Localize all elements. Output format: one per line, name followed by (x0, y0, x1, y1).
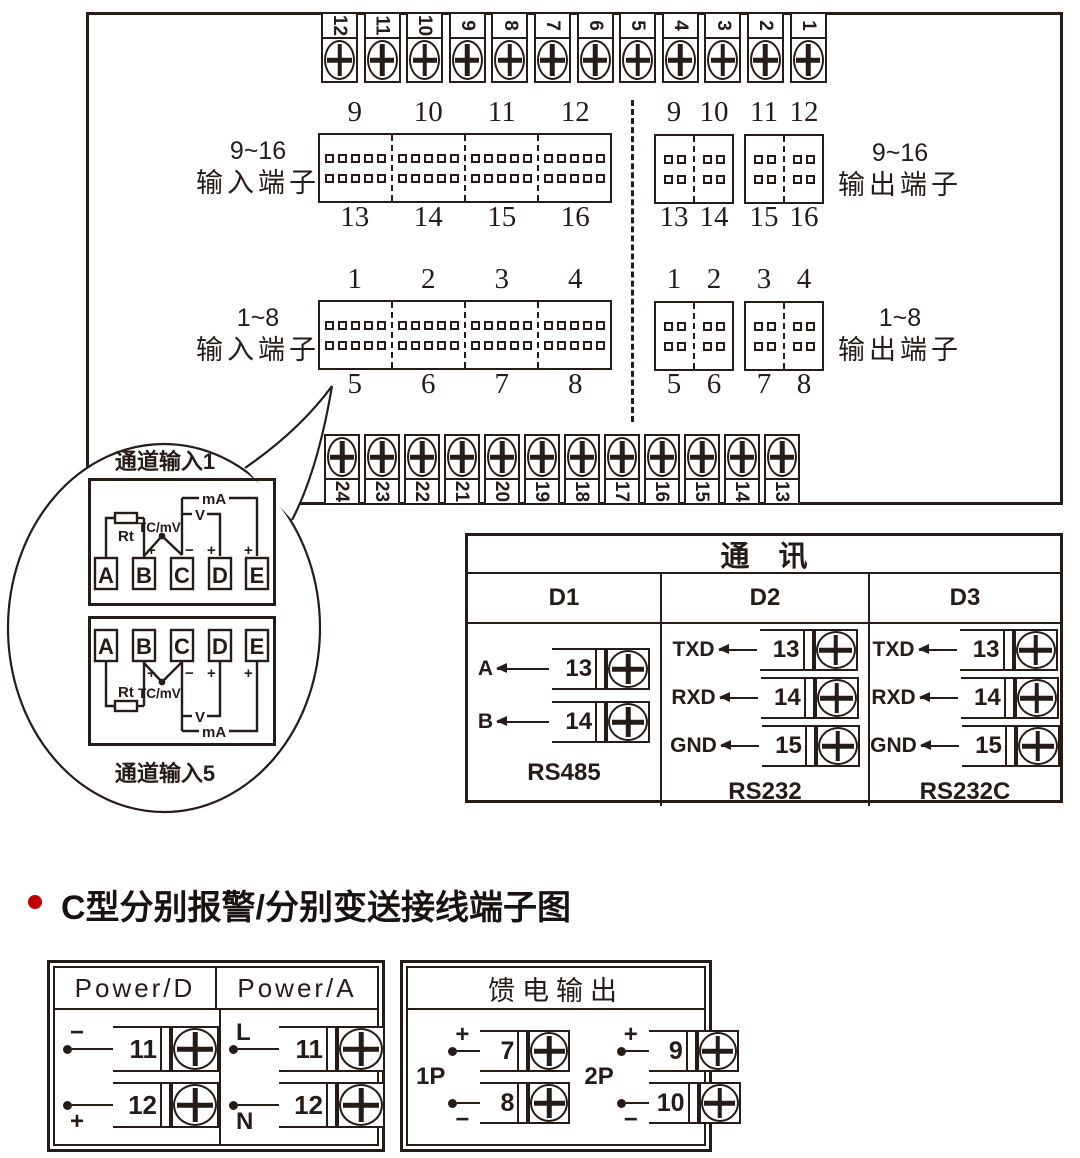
channel-input-5-label: 通道输入5 (60, 756, 270, 788)
terminal-number: 14 (971, 679, 1004, 717)
pin-square (677, 322, 686, 331)
pin-square (754, 342, 763, 351)
terminal-number: 18 (566, 478, 598, 503)
screw-terminal: 23 (364, 434, 400, 505)
terminal-number: 12 (123, 1084, 160, 1126)
pin-square (596, 341, 605, 350)
pin-square (677, 155, 686, 164)
signal-row: GND15 (670, 725, 860, 767)
power-column-title: Power/D (55, 968, 215, 1008)
arrow-icon (720, 697, 758, 699)
terminal-number: 23 (366, 478, 398, 503)
pin-column-number: 15 (744, 201, 784, 234)
terminal-number: 6 (579, 14, 612, 39)
signal-row: RXD14 (671, 677, 858, 719)
pin-square (570, 321, 579, 330)
terminal-number: 14 (726, 478, 758, 503)
tc-mv-label: TC/mV (138, 520, 181, 535)
power-terminal-box: Power/DPower/A −11+12L11N12 (47, 960, 385, 1152)
pin-square (767, 342, 776, 351)
signal-row: TXD13 (873, 629, 1058, 671)
pin-column-number: 4 (784, 263, 824, 296)
pin-column-number: 9 (654, 96, 694, 129)
pin-square (716, 342, 725, 351)
terminal-b: B (136, 563, 152, 588)
screw-terminal: 19 (524, 434, 560, 505)
pin-square (570, 174, 579, 183)
pin-square (544, 341, 553, 350)
terminal-number: 22 (406, 478, 438, 503)
polarity-sign: + (624, 1023, 638, 1047)
pin-column-number: 7 (744, 368, 784, 401)
terminal-a: A (98, 563, 114, 588)
pin-square (484, 154, 493, 163)
arrow-icon (497, 721, 549, 723)
wire: N (229, 1083, 279, 1127)
arrow-icon (921, 745, 959, 747)
label-text: 输出端子 (800, 169, 1000, 203)
pin-square (471, 174, 480, 183)
screw-icon (1015, 677, 1059, 719)
pin-square (424, 321, 433, 330)
feed-output-box: 馈电输出 1P+7−82P+9−10 (400, 960, 712, 1152)
terminal: 14 (761, 677, 859, 719)
screw-icon (1016, 725, 1060, 767)
terminal-number: 3 (706, 14, 739, 39)
power-terminal-row: N12 (229, 1082, 385, 1128)
ma-label: mA (202, 724, 226, 741)
pin-square (716, 155, 725, 164)
communication-table: 通 讯 D1A13B14RS485D2TXD13RXD14GND15RS232D… (465, 533, 1063, 803)
pin-square (377, 174, 386, 183)
screw-terminal: 11 (364, 12, 401, 83)
minus-sign: − (185, 665, 194, 682)
pin-column-number: 8 (784, 368, 824, 401)
signal-name: B (478, 710, 493, 734)
pin-square (484, 174, 493, 183)
screw-icon (793, 40, 824, 80)
pin-square (398, 174, 407, 183)
terminal-number: 8 (488, 1084, 517, 1122)
terminal: 8 (480, 1082, 570, 1124)
pin-square (398, 321, 407, 330)
pin-square (497, 321, 506, 330)
pin-cell (464, 135, 537, 201)
screw-icon (815, 677, 859, 719)
terminal-d: D (212, 634, 228, 659)
pin-column-number: 1 (318, 263, 392, 296)
pin-column-number: 3 (744, 263, 784, 296)
terminal-number: 15 (972, 727, 1005, 765)
wire: + (63, 1083, 113, 1127)
input-9-16-connector (318, 133, 612, 203)
rt-label: Rt (118, 528, 134, 545)
wiring-diagram-page: { "colors": { "ink": "#251c18", "bullet"… (0, 0, 1080, 1158)
terminal-number: 15 (686, 478, 718, 503)
screw-icon (367, 40, 398, 80)
arrow-icon (497, 668, 549, 670)
wire: + (448, 1029, 480, 1073)
pin-square (570, 341, 579, 350)
screw-icon (816, 725, 860, 767)
terminal: 13 (960, 629, 1058, 671)
feed-output-title: 馈电输出 (408, 968, 704, 1010)
signal-row: TXD13 (673, 629, 858, 671)
comm-column-title: D3 (870, 574, 1060, 624)
plus-sign: + (244, 542, 253, 559)
feed-group-label: 2P (584, 1063, 613, 1091)
pin-square (523, 154, 532, 163)
terminal-number: 1 (792, 14, 825, 39)
terminal-number: 4 (664, 14, 697, 39)
communication-columns: D1A13B14RS485D2TXD13RXD14GND15RS232D3TXD… (468, 574, 1060, 806)
power-box-inner: Power/DPower/A −11+12L11N12 (53, 966, 379, 1146)
terminal-number: 2 (749, 14, 782, 39)
terminal: 15 (762, 725, 860, 767)
pin-cell (693, 303, 732, 369)
pin-column-number: 2 (392, 263, 466, 296)
pin-square (377, 154, 386, 163)
label-text: 输入端子 (158, 334, 358, 368)
terminal-number: 15 (772, 727, 805, 765)
wire: − (617, 1081, 649, 1125)
top-terminal-strip: 121110987654321 (321, 12, 827, 83)
pin-square (364, 341, 373, 350)
pin-square (570, 154, 579, 163)
pin-column-number: 13 (654, 201, 694, 234)
comm-column-d3: D3TXD13RXD14GND15RS232C (868, 574, 1060, 806)
pin-square (767, 322, 776, 331)
pin-cell (537, 302, 610, 368)
pin-square (364, 154, 373, 163)
terminal-number: 11 (289, 1028, 326, 1070)
comm-column-title: D1 (468, 574, 660, 624)
pin-square (754, 175, 763, 184)
polarity-sign: L (236, 1021, 251, 1045)
screw-icon (606, 701, 650, 743)
feed-terminal-row: +7 (448, 1029, 570, 1073)
terminal-number: 7 (536, 14, 569, 39)
screw-icon (1014, 629, 1058, 671)
pin-square (754, 155, 763, 164)
pin-square (510, 154, 519, 163)
pin-square (398, 154, 407, 163)
pin-column-number: 7 (465, 368, 539, 401)
plus-sign: + (147, 665, 156, 682)
screw-icon (580, 40, 611, 80)
signal-row: B14 (478, 701, 650, 743)
terminal-e: E (250, 563, 265, 588)
screw-terminal: 4 (662, 12, 699, 83)
output-9-16-bottom-numbers: 13141516 (654, 201, 824, 233)
comm-standard-label: RS485 (527, 759, 600, 787)
terminal: 13 (760, 629, 858, 671)
signal-row: RXD14 (871, 677, 1058, 719)
screw-icon (647, 437, 677, 477)
terminal-number: 5 (621, 14, 654, 39)
terminal-number: 11 (366, 14, 399, 39)
pin-column-number: 12 (539, 96, 613, 129)
pin-square (716, 322, 725, 331)
pin-square (557, 154, 566, 163)
pin-column-number: 9 (318, 96, 392, 129)
screw-terminal: 18 (564, 434, 600, 505)
volt-label: V (195, 507, 205, 524)
terminal-c: C (174, 563, 190, 588)
pin-square (523, 341, 532, 350)
terminal-b: B (136, 634, 152, 659)
pin-column-number: 8 (539, 368, 613, 401)
power-terminal-row: +12 (63, 1082, 219, 1128)
input-output-divider (631, 100, 634, 422)
rt-label: Rt (118, 684, 134, 701)
pin-square (596, 321, 605, 330)
output-9-16-top-numbers: 9101112 (654, 96, 824, 128)
channel-input-1-wiring: A B C D E Rt TC/mV V mA + − + + (88, 478, 276, 606)
pin-square (450, 154, 459, 163)
power-terminal-row: −11 (63, 1026, 219, 1072)
pin-square (544, 154, 553, 163)
signal-name: GND (870, 734, 917, 758)
pin-cell (656, 136, 693, 202)
pin-column-number: 11 (744, 96, 784, 129)
pin-column-number: 13 (318, 201, 392, 234)
arrow-icon (721, 745, 759, 747)
pin-square (523, 174, 532, 183)
pin-square (497, 341, 506, 350)
pin-square (437, 154, 446, 163)
pin-column-number: 4 (539, 263, 613, 296)
pin-square (664, 322, 673, 331)
pin-cell (464, 302, 537, 368)
arrow-icon (719, 649, 757, 651)
signal-row: GND15 (870, 725, 1060, 767)
terminal-number: 14 (771, 679, 804, 717)
pin-square (450, 174, 459, 183)
pin-square (583, 321, 592, 330)
pin-column-number: 2 (694, 263, 734, 296)
screw-icon (606, 648, 650, 690)
comm-column-title: D2 (662, 574, 868, 624)
screw-icon (537, 40, 568, 80)
terminal-number: 13 (766, 478, 798, 503)
pin-square (703, 342, 712, 351)
wire: + (617, 1029, 649, 1073)
screw-icon (727, 437, 757, 477)
pin-square (767, 155, 776, 164)
pin-column-number: 10 (694, 96, 734, 129)
screw-terminal: 7 (534, 12, 571, 83)
signal-name: RXD (671, 686, 715, 710)
screw-icon (367, 437, 397, 477)
arrow-icon (919, 649, 957, 651)
feed-terminal-row: +9 (617, 1029, 741, 1073)
pin-square (583, 154, 592, 163)
terminal-number: 13 (970, 631, 1003, 669)
pin-column-number: 6 (694, 368, 734, 401)
pin-square (557, 321, 566, 330)
terminal-number: 21 (446, 478, 478, 503)
pin-cell (391, 302, 464, 368)
screw-icon (567, 437, 597, 477)
screw-icon (750, 40, 781, 80)
pin-column-number: 10 (392, 96, 466, 129)
pin-square (716, 175, 725, 184)
polarity-sign: − (70, 1021, 84, 1045)
terminal: 11 (279, 1026, 385, 1072)
comm-column-d1: D1A13B14RS485 (468, 574, 660, 806)
terminal: 14 (552, 701, 650, 743)
pin-square (664, 155, 673, 164)
power-column-body: L11N12 (219, 1010, 385, 1144)
feed-group-label: 1P (416, 1063, 445, 1091)
screw-terminal: 20 (484, 434, 520, 505)
screw-icon (528, 1030, 570, 1072)
label-range: 1~8 (800, 303, 1000, 334)
screw-icon (622, 40, 653, 80)
pin-square (677, 175, 686, 184)
bottom-terminal-strip: 242322212019181716151413 (324, 434, 800, 505)
pin-cell (746, 136, 783, 202)
terminal-number: 7 (488, 1032, 517, 1070)
pin-column-number: 14 (392, 201, 466, 234)
signal-name: TXD (873, 638, 915, 662)
terminal-number: 10 (657, 1084, 688, 1122)
pin-square (411, 154, 420, 163)
pin-square (484, 321, 493, 330)
label-range: 9~16 (158, 136, 358, 167)
power-box-body: −11+12L11N12 (55, 1010, 377, 1144)
pin-cell (656, 303, 693, 369)
pin-column-number: 14 (694, 201, 734, 234)
pin-square (523, 321, 532, 330)
section-heading-text: C型分别报警/分别变送接线端子图 (61, 880, 571, 929)
input-1-8-connector (318, 300, 612, 370)
input-1-8-top-numbers: 1234 (318, 263, 612, 295)
screw-icon (487, 437, 517, 477)
screw-icon (607, 437, 637, 477)
label-text: 输出端子 (800, 334, 1000, 368)
pin-square (450, 321, 459, 330)
feed-box-inner: 馈电输出 1P+7−82P+9−10 (406, 966, 706, 1146)
pin-column-number: 15 (465, 201, 539, 234)
screw-terminal: 13 (764, 434, 800, 505)
screw-icon (528, 1082, 570, 1124)
screw-terminal: 10 (406, 12, 443, 83)
screw-icon (665, 40, 696, 80)
wire: − (63, 1027, 113, 1071)
pin-column-number: 16 (539, 201, 613, 234)
signal-name: GND (670, 734, 717, 758)
screw-terminal: 16 (644, 434, 680, 505)
pin-square (364, 321, 373, 330)
comm-column-body: TXD13RXD14GND15RS232C (870, 624, 1060, 806)
feed-group-1p: 1P+7−8 (416, 1029, 570, 1125)
pin-square (557, 341, 566, 350)
screw-terminal: 9 (449, 12, 486, 83)
pin-column-number: 1 (654, 263, 694, 296)
pin-square (497, 154, 506, 163)
pin-square (484, 341, 493, 350)
pin-cell (537, 135, 610, 201)
terminal-c: C (174, 634, 190, 659)
input-9-16-label: 9~16 输入端子 (158, 136, 358, 201)
screw-icon (447, 437, 477, 477)
screw-terminal: 1 (790, 12, 827, 83)
comm-column-d2: D2TXD13RXD14GND15RS232 (660, 574, 868, 806)
screw-terminal: 2 (747, 12, 784, 83)
screw-icon (767, 437, 797, 477)
terminal: 9 (649, 1030, 739, 1072)
signal-name: TXD (673, 638, 715, 662)
terminal-number: 20 (486, 478, 518, 503)
wire: L (229, 1027, 279, 1071)
terminal: 11 (113, 1026, 219, 1072)
screw-icon (407, 437, 437, 477)
feed-group-2p: 2P+9−10 (584, 1029, 740, 1125)
pin-square (754, 322, 763, 331)
comm-column-body: TXD13RXD14GND15RS232 (662, 624, 868, 806)
pin-column-number: 5 (654, 368, 694, 401)
terminal-number: 11 (123, 1028, 160, 1070)
screw-icon (494, 40, 525, 80)
pin-square (450, 341, 459, 350)
pin-cell (746, 303, 783, 369)
pin-square (437, 341, 446, 350)
pin-square (767, 175, 776, 184)
screw-terminal: 21 (444, 434, 480, 505)
screw-icon (687, 437, 717, 477)
channel-input-1-label: 通道输入1 (60, 444, 270, 476)
feed-output-body: 1P+7−82P+9−10 (408, 1010, 704, 1144)
plus-sign: + (207, 542, 216, 559)
pin-square (424, 174, 433, 183)
pin-square (377, 321, 386, 330)
input-1-8-label: 1~8 输入端子 (158, 303, 358, 368)
terminal-d: D (212, 563, 228, 588)
pin-square (544, 174, 553, 183)
pin-square (497, 174, 506, 183)
feed-terminal-row: −10 (617, 1081, 741, 1125)
pin-square (364, 174, 373, 183)
pin-square (510, 321, 519, 330)
output-9-16-connector-a (654, 134, 734, 204)
signal-name: RXD (871, 686, 915, 710)
screw-terminal: 8 (491, 12, 528, 83)
plus-sign: + (207, 665, 216, 682)
polarity-sign: − (624, 1108, 638, 1132)
pin-square (437, 321, 446, 330)
terminal-a: A (98, 634, 114, 659)
screw-terminal: 17 (604, 434, 640, 505)
signal-row: A13 (478, 648, 650, 690)
terminal-number: 17 (606, 478, 638, 503)
communication-title: 通 讯 (468, 536, 1060, 574)
terminal-number: 12 (323, 14, 356, 39)
pin-square (471, 154, 480, 163)
comm-standard-label: RS232 (728, 778, 801, 806)
pin-square (596, 154, 605, 163)
polarity-sign: + (455, 1023, 469, 1047)
pin-column-number: 16 (784, 201, 824, 234)
signal-name: A (478, 657, 493, 681)
pin-square (471, 341, 480, 350)
pin-square (471, 321, 480, 330)
pin-column-number: 12 (784, 96, 824, 129)
pin-cell (693, 136, 732, 202)
pin-square (596, 174, 605, 183)
screw-terminal: 22 (404, 434, 440, 505)
